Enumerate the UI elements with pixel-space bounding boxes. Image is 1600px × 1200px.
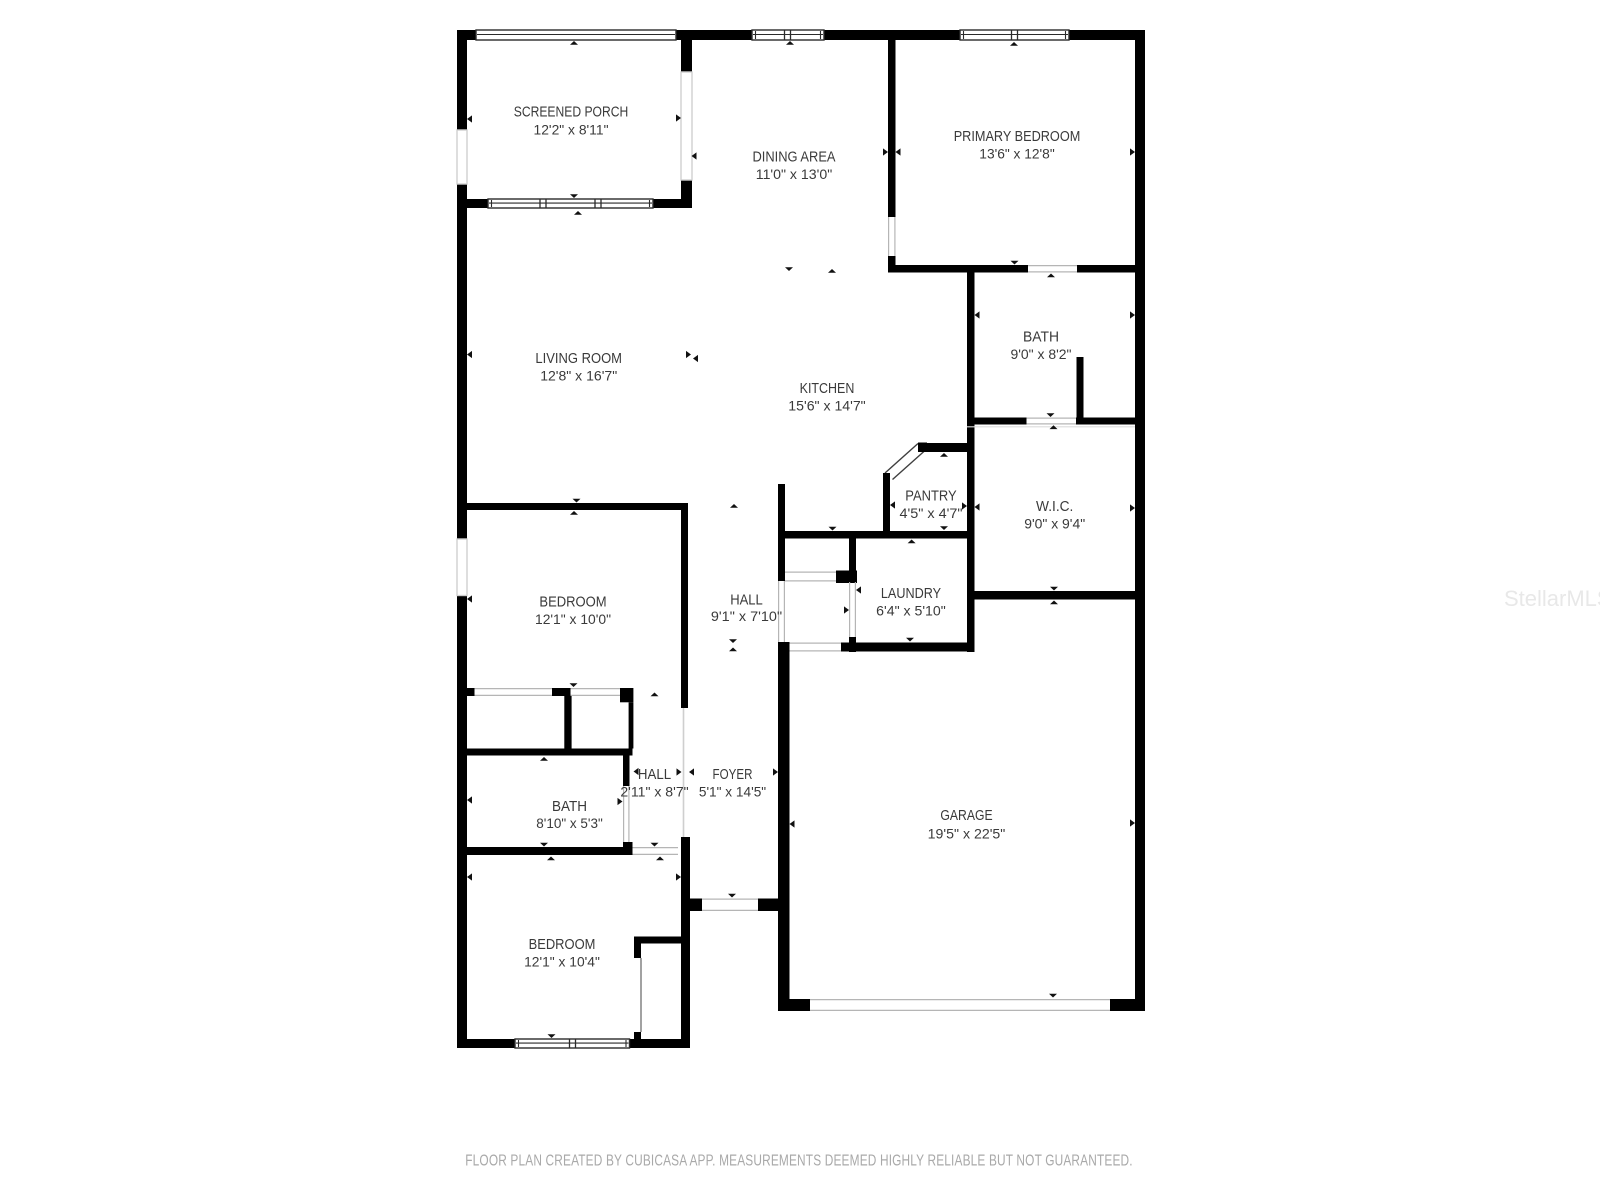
svg-text:DINING AREA: DINING AREA: [753, 149, 836, 166]
svg-text:KITCHEN: KITCHEN: [800, 380, 855, 397]
svg-text:FOYER: FOYER: [713, 766, 753, 783]
svg-text:12'8" x 16'7": 12'8" x 16'7": [540, 368, 617, 384]
svg-text:W.I.C.: W.I.C.: [1036, 498, 1073, 515]
svg-text:8'10" x 5'3": 8'10" x 5'3": [536, 815, 603, 831]
svg-text:BEDROOM: BEDROOM: [539, 594, 606, 611]
svg-text:BEDROOM: BEDROOM: [529, 936, 596, 953]
svg-text:FLOOR PLAN CREATED BY CUBICASA: FLOOR PLAN CREATED BY CUBICASA APP. MEAS…: [465, 1153, 1133, 1170]
svg-text:5'1" x 14'5": 5'1" x 14'5": [699, 784, 766, 800]
svg-text:HALL: HALL: [730, 592, 763, 609]
svg-text:12'1" x 10'0": 12'1" x 10'0": [535, 611, 611, 627]
svg-text:LAUNDRY: LAUNDRY: [881, 585, 941, 602]
svg-text:19'5" x 22'5": 19'5" x 22'5": [928, 826, 1006, 842]
svg-text:9'0" x 9'4": 9'0" x 9'4": [1024, 516, 1085, 532]
svg-text:LIVING ROOM: LIVING ROOM: [535, 350, 622, 367]
svg-text:12'2" x 8'11": 12'2" x 8'11": [534, 122, 609, 138]
svg-text:BATH: BATH: [552, 798, 587, 815]
svg-text:15'6" x 14'7": 15'6" x 14'7": [788, 398, 865, 414]
svg-text:GARAGE: GARAGE: [940, 807, 992, 824]
svg-text:13'6" x 12'8": 13'6" x 12'8": [979, 146, 1054, 162]
svg-text:2'11" x 8'7": 2'11" x 8'7": [620, 784, 688, 800]
svg-text:9'1" x 7'10": 9'1" x 7'10": [711, 608, 782, 624]
svg-text:6'4" x 5'10": 6'4" x 5'10": [876, 603, 946, 619]
svg-text:HALL: HALL: [638, 766, 671, 783]
svg-text:PANTRY: PANTRY: [905, 488, 956, 505]
svg-text:BATH: BATH: [1023, 329, 1059, 346]
svg-text:9'0" x 8'2": 9'0" x 8'2": [1011, 346, 1072, 362]
svg-text:12'1" x 10'4": 12'1" x 10'4": [524, 954, 600, 970]
svg-text:PRIMARY BEDROOM: PRIMARY BEDROOM: [954, 128, 1081, 145]
svg-text:SCREENED PORCH: SCREENED PORCH: [514, 104, 629, 121]
svg-text:4'5" x 4'7": 4'5" x 4'7": [900, 505, 963, 521]
svg-text:11'0" x 13'0": 11'0" x 13'0": [756, 166, 833, 182]
svg-text:StellarMLS: StellarMLS: [1504, 586, 1600, 611]
